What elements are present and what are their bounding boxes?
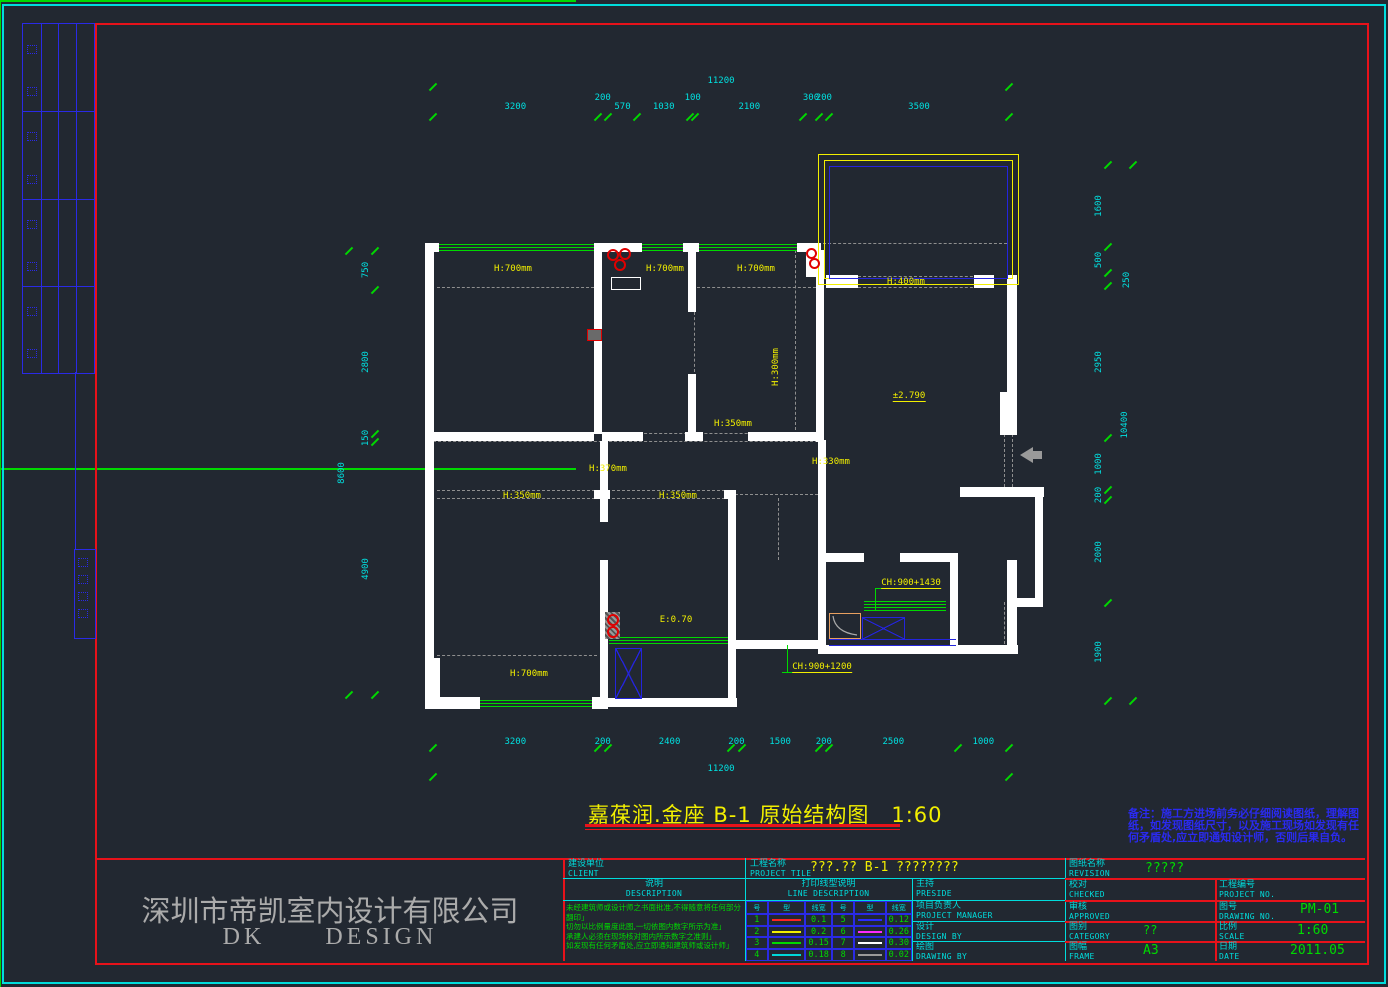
tb-line <box>1215 878 1217 961</box>
line-table-row: 10.150.12 <box>746 914 912 926</box>
line-sample-stroke <box>772 931 801 933</box>
tb-line <box>912 878 913 961</box>
dim-label: 2950 <box>1094 351 1104 373</box>
line-table-row: 40.1880.02 <box>746 949 912 961</box>
title-underline <box>585 824 900 827</box>
wall <box>728 497 736 706</box>
line-table-cell: 0.30 <box>886 937 912 949</box>
dim-line <box>0 1 576 2</box>
beam-dashed <box>778 498 779 560</box>
date-label: 日期 DATE <box>1219 942 1239 962</box>
window <box>697 244 803 251</box>
revision-glyph <box>27 220 37 229</box>
entrance-arrow-icon <box>1020 447 1033 463</box>
plan-height-label: H:700mm <box>494 264 532 274</box>
scale-value: 1:60 <box>1297 923 1328 938</box>
line-table-header-cell: 线宽 <box>805 901 831 914</box>
frame-label: 图幅 FRAME <box>1069 942 1095 962</box>
project-manager-label: 项目负责人 PROJECT MANAGER <box>916 901 993 921</box>
wall <box>736 640 826 649</box>
plan-height-label: H:700mm <box>510 669 548 679</box>
revision-strip-tail <box>75 372 76 549</box>
dim-line <box>0 693 1 724</box>
wall <box>685 432 703 441</box>
wall <box>748 432 816 441</box>
dim-label: 100 <box>685 93 701 103</box>
beam-dashed <box>697 287 816 288</box>
wall <box>594 250 602 434</box>
line-table-cell: 7 <box>832 937 855 949</box>
outlet-symbol <box>587 329 602 341</box>
dim-label: 3500 <box>908 102 930 112</box>
wall <box>600 441 608 522</box>
dim-overall-label: 10400 <box>1120 411 1130 438</box>
dim-line <box>0 817 1 848</box>
dim-label: 150 <box>361 430 371 446</box>
dim-label: 2800 <box>361 351 371 373</box>
plan-height-label: H:370mm <box>589 464 627 474</box>
stove-burner-icon <box>809 258 820 269</box>
plan-height-label: ±2.790 <box>893 391 926 402</box>
revision-glyph <box>27 262 37 271</box>
client-label: 建设单位 CLIENT <box>568 859 604 879</box>
dim-line <box>0 435 1 468</box>
door-jamb <box>1000 392 1017 435</box>
dim-line <box>0 724 1 755</box>
dim-line <box>0 303 1 336</box>
dim-label: 4900 <box>361 558 371 580</box>
dim-label: 570 <box>614 102 630 112</box>
project-no-label: 工程编号 PROJECT NO. <box>1219 880 1275 900</box>
line-table-header-cell: 号 <box>832 901 855 914</box>
dim-line <box>0 369 1 402</box>
line-table-cell: 0.2 <box>805 926 831 938</box>
line-table-cell: 0.02 <box>886 949 912 961</box>
revision-glyph <box>27 175 37 184</box>
design-by-label: 设计 DESIGN BY <box>916 922 962 942</box>
plan-height-label: H:350mm <box>503 491 541 501</box>
revision-glyph <box>78 558 88 567</box>
wall <box>960 487 1044 497</box>
entrance-arrow-tail <box>1033 451 1042 459</box>
line-type-table: 号型线宽号型线宽10.150.1220.260.2630.1570.3040.1… <box>746 901 912 961</box>
plan-height-label: CH:900+1430 <box>881 578 941 589</box>
line-table-cell: 8 <box>832 949 855 961</box>
beam-dashed <box>858 287 978 288</box>
wall <box>688 374 696 434</box>
stove-burner-icon <box>607 626 619 638</box>
leader-line <box>787 645 788 673</box>
dim-line <box>0 848 1 879</box>
line-sample <box>854 937 885 949</box>
dim-label: 200 <box>728 737 744 747</box>
line-sample-stroke <box>858 942 882 944</box>
dim-line <box>0 237 1 270</box>
leader-line <box>875 589 876 610</box>
window <box>864 601 946 611</box>
wall <box>688 250 696 312</box>
dim-label: 1500 <box>769 737 791 747</box>
wall <box>818 645 1018 654</box>
beam-dashed <box>735 494 818 495</box>
line-table-cell: 3 <box>746 937 768 949</box>
dim-label: 200 <box>1094 487 1104 503</box>
tb-line <box>1065 878 1365 880</box>
approved-label: 审核 APPROVED <box>1069 902 1110 922</box>
scale-label: 比例 SCALE <box>1219 922 1245 942</box>
dim-line <box>0 631 1 662</box>
drawing-no-value: PM-01 <box>1300 902 1339 917</box>
dim-label: 200 <box>816 737 832 747</box>
dim-label: 1000 <box>1094 453 1104 475</box>
line-sample <box>768 926 806 938</box>
dim-line <box>0 138 1 171</box>
kitchen-counter <box>611 277 641 290</box>
dim-line <box>0 470 1 535</box>
dim-label: 200 <box>595 93 611 103</box>
window <box>609 637 730 645</box>
wall <box>425 697 480 709</box>
plan-height-label: H:330mm <box>812 457 850 467</box>
checked-label: 校对 CHECKED <box>1069 880 1105 900</box>
door-opening-dashed <box>1012 434 1013 487</box>
bathtub <box>829 613 861 639</box>
window-box <box>615 648 642 699</box>
dim-line <box>0 70 1 138</box>
dim-overall-label: 8600 <box>337 462 347 484</box>
wall <box>600 698 737 707</box>
tb-line <box>1065 858 1066 961</box>
line-table-cell: 6 <box>832 926 855 938</box>
dim-overall-label: 11200 <box>707 764 734 774</box>
dim-label: 2100 <box>738 102 760 112</box>
line-sample-stroke <box>772 919 801 921</box>
dim-label: 200 <box>595 737 611 747</box>
dim-label: 2400 <box>659 737 681 747</box>
line-sample <box>768 949 806 961</box>
line-table-cell: 0.26 <box>886 926 912 938</box>
revision-glyph <box>78 609 88 618</box>
beam-dashed <box>795 250 796 430</box>
plan-height-label: H:400mm <box>887 277 925 287</box>
dim-line <box>0 755 1 786</box>
wall <box>425 243 439 252</box>
project-title-label: 工程名称 PROJECT TILE <box>750 859 811 879</box>
dim-line <box>0 204 1 237</box>
line-table-cell: 0.18 <box>805 949 831 961</box>
dim-label: 1030 <box>653 102 675 112</box>
revision-glyph <box>27 307 37 316</box>
line-sample <box>854 926 885 938</box>
line-sample-stroke <box>858 919 882 921</box>
line-table-header-cell: 型 <box>768 901 806 914</box>
dim-label: 1900 <box>1094 641 1104 663</box>
line-sample-stroke <box>858 931 882 933</box>
plan-height-label: H:300mm <box>771 348 781 386</box>
dim-label: 750 <box>361 262 371 278</box>
door-opening-dashed <box>694 312 695 372</box>
dim-line <box>0 600 1 631</box>
dim-label: 2500 <box>882 737 904 747</box>
revision-glyph <box>27 45 37 54</box>
dim-label: 2000 <box>1094 541 1104 563</box>
site-note: 备注：施工方进场前务必仔细阅读图纸，理解图纸，如发现图纸尺寸，以及施工现场如发现… <box>1128 808 1364 856</box>
wall <box>425 243 434 705</box>
revision-glyph <box>27 87 37 96</box>
dim-line <box>0 171 1 204</box>
wall <box>602 432 643 441</box>
revision-value: ????? <box>1145 861 1184 876</box>
line-table-cell: 0.12 <box>886 914 912 926</box>
description-text: 未经建筑师或设计师之书面批准,不得随意将任何部分翻印」 切勿以比例量度此图,一切… <box>566 903 744 951</box>
description-label: 说明 DESCRIPTION <box>563 879 745 899</box>
dim-label: 200 <box>816 93 832 103</box>
window <box>640 244 687 251</box>
dim-label: 1600 <box>1094 195 1104 217</box>
frame-value: A3 <box>1143 943 1159 958</box>
window <box>433 244 597 252</box>
beam-dashed <box>437 655 597 656</box>
dim-line <box>0 879 1 987</box>
dim-label: 3200 <box>504 102 526 112</box>
revision-glyph <box>27 132 37 141</box>
dim-label: 3200 <box>504 737 526 747</box>
category-value: ?? <box>1143 923 1157 937</box>
line-table-cell: 1 <box>746 914 768 926</box>
cad-canvas: 嘉葆润.金座 B-1 原始结构图1:60 备注：施工方进场前务必仔细阅读图纸，理… <box>0 0 1388 987</box>
revision-glyph <box>27 349 37 358</box>
line-table-cell: 0.15 <box>805 937 831 949</box>
line-table-header-cell: 型 <box>854 901 885 914</box>
line-table-header-row: 号型线宽号型线宽 <box>746 901 912 914</box>
line-sample <box>768 914 806 926</box>
window-box <box>862 617 905 640</box>
line-description-label: 打印线型说明 LINE DESCRIPTION <box>745 879 912 899</box>
title-underline-2 <box>585 829 900 830</box>
line-table-header-cell: 号 <box>746 901 768 914</box>
beam-dashed <box>437 287 594 288</box>
line-sample-stroke <box>772 954 801 956</box>
window-double-line <box>829 639 956 646</box>
line-table-cell: 4 <box>746 949 768 961</box>
dim-line <box>0 402 1 435</box>
drawing-by-label: 绘图 DRAWING BY <box>916 942 967 962</box>
dim-line <box>0 336 1 369</box>
line-sample <box>768 937 806 949</box>
wall <box>1007 275 1017 394</box>
plan-height-label: H:350mm <box>659 491 697 501</box>
dim-overall-label: 11200 <box>707 76 734 86</box>
wall <box>818 440 826 654</box>
line-table-cell: 5 <box>832 914 855 926</box>
tb-line <box>563 858 565 961</box>
line-table-cell: 0.1 <box>805 914 831 926</box>
revision-glyph <box>78 592 88 601</box>
wall <box>950 560 958 645</box>
line-table-row: 20.260.26 <box>746 926 912 938</box>
line-sample <box>854 914 885 926</box>
plan-height-label: E:0.70 <box>660 615 693 625</box>
dim-line <box>0 535 1 600</box>
date-value: 2011.05 <box>1290 943 1345 958</box>
plan-height-label: CH:900+1200 <box>792 662 852 673</box>
dim-line <box>0 2 1 70</box>
wall <box>1007 560 1017 649</box>
project-title-value: ???.?? B-1 ???????? <box>810 860 1065 875</box>
company-sub: DK DESIGN <box>130 924 530 951</box>
wall <box>592 697 608 709</box>
wall <box>433 432 594 441</box>
preside-label: 主持 PRESIDE <box>916 879 952 899</box>
stove-burner-icon <box>607 614 619 626</box>
line-sample-stroke <box>858 954 882 956</box>
dim-label: 1000 <box>972 737 994 747</box>
door-opening-dashed <box>1004 434 1005 487</box>
revision-strip <box>22 23 95 374</box>
beam-dashed <box>1004 602 1005 644</box>
dim-line <box>0 662 1 693</box>
beam-dashed <box>433 441 823 442</box>
category-label: 图别 CATEGORY <box>1069 922 1110 942</box>
stove-burner-icon <box>614 259 626 271</box>
titleblock-top-line <box>95 858 1365 860</box>
dim-line <box>0 270 1 303</box>
line-table-header-cell: 线宽 <box>886 901 912 914</box>
line-sample-stroke <box>772 942 801 944</box>
line-table-row: 30.1570.30 <box>746 937 912 949</box>
plan-height-label: H:350mm <box>714 419 752 429</box>
line-table-cell: 2 <box>746 926 768 938</box>
dim-label: 500 <box>1094 252 1104 268</box>
plan-height-label: H:700mm <box>737 264 775 274</box>
balcony-glass <box>829 166 1008 279</box>
dim-line <box>0 786 1 817</box>
dim-label: 250 <box>1122 272 1132 288</box>
line-sample <box>854 949 885 961</box>
plan-height-label: H:700mm <box>646 264 684 274</box>
wall <box>1035 497 1043 604</box>
window <box>478 700 600 709</box>
drawing-no-label: 图号 DRAWING NO. <box>1219 902 1275 922</box>
revision-glyph <box>78 575 88 584</box>
wall <box>818 553 864 562</box>
revision-label: 图纸名称 REVISION <box>1069 859 1110 879</box>
